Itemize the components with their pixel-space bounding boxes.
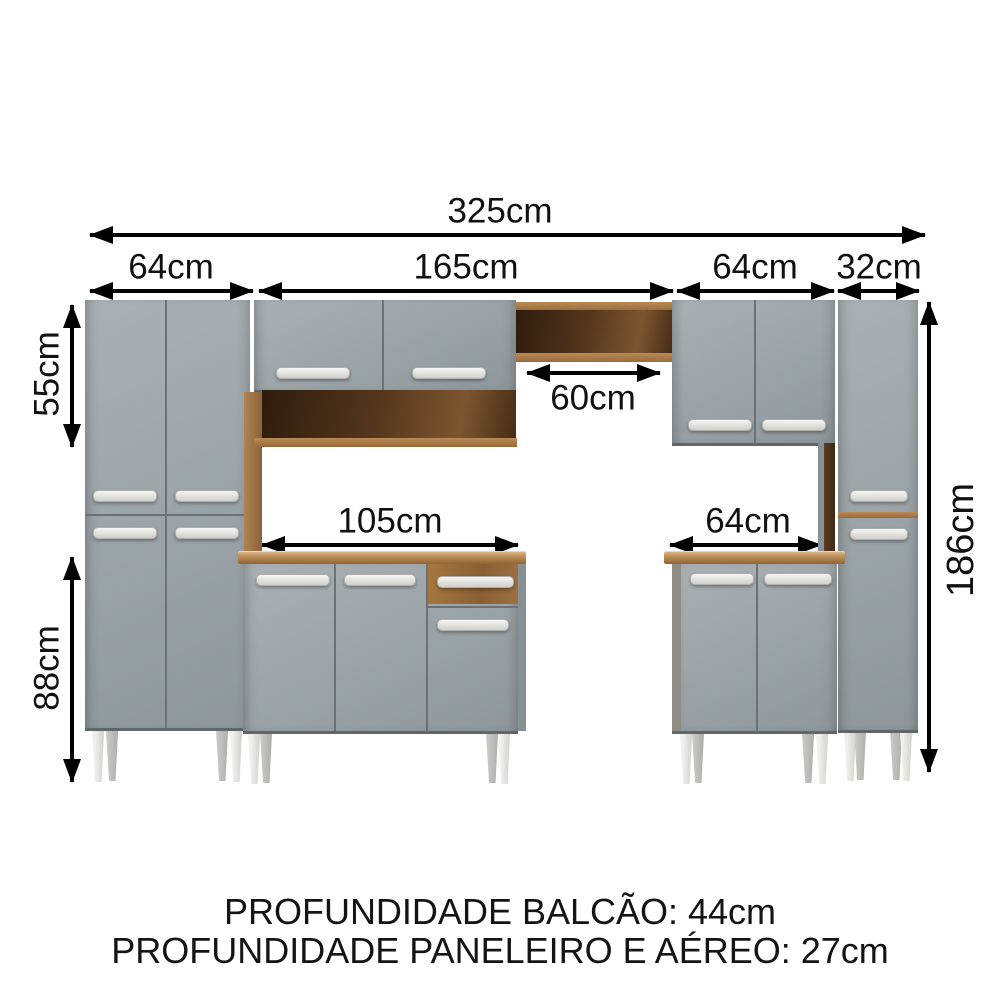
- door-handle: [764, 573, 832, 585]
- dim-label-right-base-width: 64cm: [705, 504, 791, 539]
- door-gap: [756, 563, 758, 731]
- door-handle: [762, 419, 826, 431]
- dim-label-right-section: 64cm: [712, 250, 798, 285]
- dim-label-counter-width: 105cm: [337, 504, 442, 539]
- niche-interior: [262, 390, 516, 440]
- upper-mid-body: [254, 300, 516, 393]
- dim-label-center-section: 165cm: [413, 250, 518, 285]
- tall-cabinet-divider: [838, 512, 918, 518]
- right-base-body: [672, 563, 837, 734]
- niche-shelf-lip: [254, 438, 517, 447]
- cabinet-leg: [258, 732, 274, 783]
- door-handle: [175, 490, 239, 502]
- dim-arrow-upper-height: [70, 305, 74, 447]
- drawer-handle: [437, 576, 514, 588]
- dim-arrow-lower-height: [70, 557, 74, 782]
- cabinet-leg: [228, 731, 244, 782]
- dim-arrow-left-section: [90, 289, 253, 293]
- dim-arrow-right-base-width: [670, 543, 821, 547]
- dim-arrow-tall-cabinet: [838, 289, 919, 293]
- dim-arrow-right-section: [677, 289, 834, 293]
- door-gap: [85, 514, 250, 516]
- cabinet-leg: [90, 731, 106, 782]
- cabinet-leg: [104, 730, 120, 781]
- dim-label-tall-cabinet: 32cm: [836, 250, 922, 285]
- dim-label-lower-height: 88cm: [30, 625, 65, 711]
- dim-label-total-width: 325cm: [447, 194, 552, 229]
- dim-label-total-height: 186cm: [942, 483, 980, 597]
- door-handle: [412, 367, 486, 379]
- cabinet-leg: [484, 732, 500, 783]
- top-shelf-interior: [516, 310, 672, 353]
- door-gap: [754, 300, 756, 443]
- base-side-panel: [672, 563, 681, 731]
- cabinet-leg: [214, 730, 230, 781]
- door-handle: [344, 574, 416, 586]
- kitchen-dimension-diagram: 325cm 64cm 165cm 64cm 32cm 55cm 88cm 186…: [0, 0, 1000, 1000]
- right-aereo-body: [672, 300, 835, 446]
- dim-label-left-section: 64cm: [128, 250, 214, 285]
- door-handle: [437, 619, 509, 631]
- door-handle: [276, 367, 350, 379]
- cabinet-leg: [246, 733, 262, 784]
- cabinet-leg: [690, 732, 706, 783]
- counter-body: [243, 563, 518, 734]
- cabinet-leg: [814, 733, 830, 784]
- door-gap: [382, 300, 384, 390]
- connector-wood-panel: [824, 443, 835, 553]
- counter-side-panel: [518, 563, 526, 731]
- cabinet-leg: [800, 732, 816, 783]
- cabinet-leg: [496, 733, 512, 784]
- door-handle: [93, 490, 157, 502]
- door-handle: [93, 527, 157, 539]
- door-handle: [850, 528, 908, 540]
- paneleiro-body: [85, 300, 250, 731]
- dim-arrow-niche-width: [527, 371, 660, 375]
- dim-label-niche-width: 60cm: [550, 381, 636, 416]
- dim-arrow-counter-width: [262, 543, 518, 547]
- depth-note-line1: PROFUNDIDADE BALCÃO: 44cm: [224, 894, 776, 930]
- dim-label-upper-height: 55cm: [30, 331, 65, 417]
- cabinet-leg: [678, 733, 694, 784]
- door-handle: [175, 527, 239, 539]
- dim-arrow-total-height: [927, 302, 931, 772]
- tall-cabinet-body: [838, 300, 918, 733]
- dim-arrow-total-width: [90, 233, 925, 237]
- door-handle: [256, 574, 330, 586]
- countertop: [238, 551, 526, 564]
- door-handle: [850, 490, 908, 502]
- top-shelf-lip: [516, 353, 672, 362]
- door-gap: [334, 563, 336, 731]
- hutch-side-panel: [244, 392, 262, 558]
- door-handle: [688, 419, 752, 431]
- depth-note-line2: PROFUNDIDADE PANELEIRO E AÉREO: 27cm: [111, 933, 889, 969]
- countertop: [664, 551, 845, 564]
- dim-arrow-center-section: [259, 289, 673, 293]
- door-gap: [428, 606, 518, 608]
- door-handle: [690, 573, 754, 585]
